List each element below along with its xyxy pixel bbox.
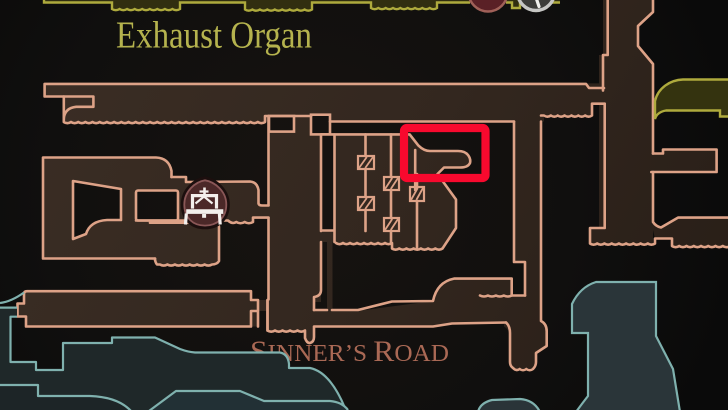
svg-text:Exhaust Organ: Exhaust Organ — [116, 15, 312, 57]
